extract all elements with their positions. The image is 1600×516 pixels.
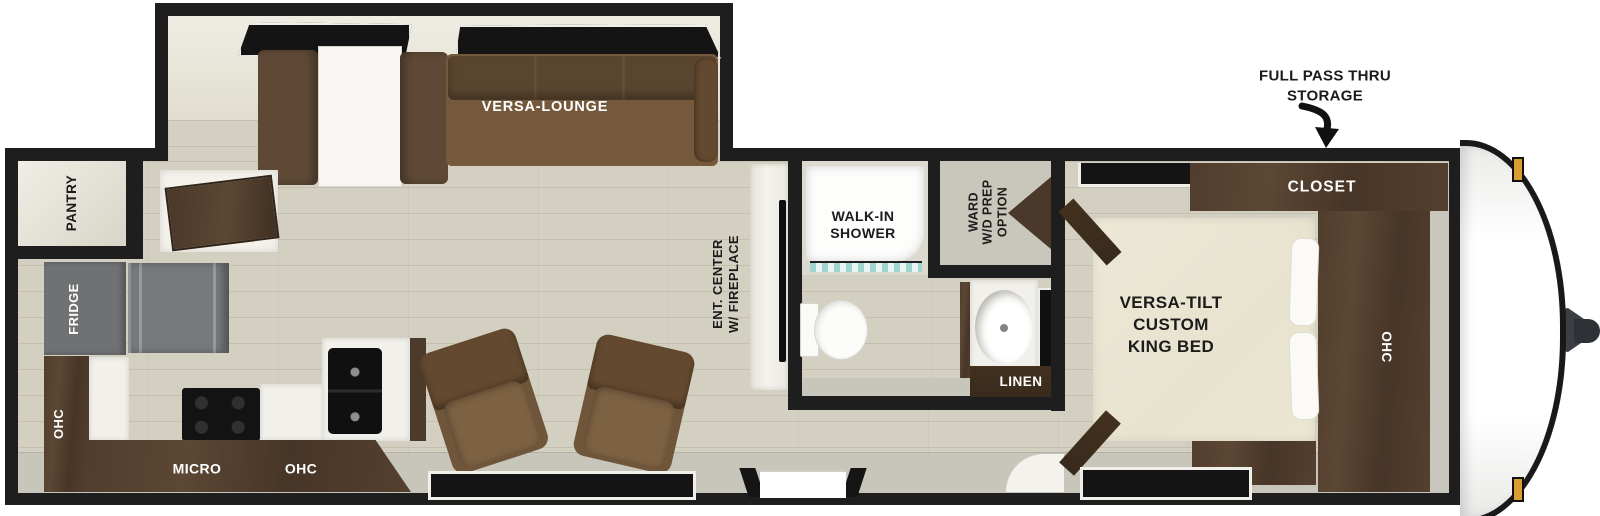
label-line: CUSTOM (1120, 314, 1223, 336)
ent-center-label: ENT. CENTER W/ FIREPLACE (710, 235, 742, 333)
label-line: OPTION (995, 179, 1009, 244)
toilet-bowl (814, 300, 868, 360)
versa-lounge-label: VERSA-LOUNGE (482, 99, 608, 117)
label-line: PANTRY (64, 175, 79, 231)
bed-pillow-1 (1288, 238, 1319, 327)
marker-light-top (1512, 157, 1524, 182)
full-pass-thru-storage-label: FULL PASS THRU STORAGE (1259, 67, 1391, 106)
overhead-cabinet-open-door (165, 175, 280, 252)
entry-door (760, 470, 846, 498)
storage-arrow-icon (1296, 102, 1352, 152)
bedroom-top-window (1078, 163, 1197, 187)
tv (779, 200, 786, 362)
hitch-tongue (1574, 319, 1600, 343)
bath-bottom-wall (788, 396, 1065, 410)
fridge (44, 262, 126, 355)
bedroom-left-wall (1051, 148, 1065, 411)
bedroom-ohc-label: OHC (1378, 331, 1394, 362)
dinette-table (318, 46, 402, 187)
sofa-back-cushions (448, 56, 716, 100)
bed-pillow-2 (1288, 332, 1319, 421)
kitchen-sink (328, 348, 382, 434)
ward-bottom-wall (940, 265, 1051, 278)
label-line: W/ FIREPLACE (726, 235, 742, 333)
dinette-bench-right (400, 52, 448, 184)
label-line: CLOSET (1288, 179, 1357, 196)
fridge-door (128, 263, 229, 353)
label-line: ENT. CENTER (710, 235, 726, 333)
label-line: VERSA-LOUNGE (482, 99, 608, 115)
bedroom-ohc-wardrobe-column (1318, 211, 1430, 492)
ward-label: WARD W/D PREP OPTION (966, 179, 1009, 244)
label-line: FRIDGE (66, 283, 81, 335)
kitchen-counter-2 (260, 384, 324, 441)
shower-glass-door (810, 261, 922, 272)
shower-label: WALK-IN SHOWER (830, 208, 895, 242)
shower-ward-divider-wall (928, 148, 940, 278)
marker-light-bottom (1512, 477, 1524, 502)
kitchen-counter-1 (89, 357, 129, 441)
bedroom-bottom-window (1080, 467, 1252, 500)
dinette-bench-left (258, 50, 318, 185)
label-line: VERSA-TILT (1120, 292, 1223, 314)
label-line: KING BED (1120, 336, 1223, 358)
label-line: WALK-IN (830, 208, 895, 225)
linen-label: LINEN (1000, 374, 1043, 390)
kitchen-ohc-left-label: OHC (51, 409, 67, 439)
label-line: FULL PASS THRU (1259, 67, 1391, 87)
bath-left-wall (788, 148, 802, 410)
label-line: OHC (285, 460, 317, 476)
pantry-label: PANTRY (64, 175, 80, 231)
stove-cooktop (182, 388, 260, 441)
kitchen-counter-micro-ohc (89, 440, 411, 492)
label-line: MICRO (173, 460, 222, 476)
king-bed-label: VERSA-TILT CUSTOM KING BED (1120, 292, 1223, 358)
rv-floorplan: VERSA-LOUNGE PANTRY FRIDGE OHC MICRO OHC… (0, 0, 1600, 516)
pantry-wall-right (126, 148, 143, 259)
sink-drain (1000, 324, 1008, 332)
label-line: OHC (1379, 331, 1394, 362)
label-line: W/D PREP (981, 179, 995, 244)
living-bottom-window (428, 471, 696, 500)
label-line: OHC (51, 409, 66, 439)
pantry-wall-bottom (5, 246, 143, 259)
label-line: SHOWER (830, 225, 895, 242)
micro-label: MICRO (173, 460, 222, 477)
fridge-label: FRIDGE (66, 283, 82, 335)
sofa-armrest (694, 58, 718, 162)
label-line: WARD (966, 179, 980, 244)
kitchen-ohc-bottom-label: OHC (285, 460, 317, 477)
closet-label: CLOSET (1288, 179, 1357, 198)
front-cap-inner-wall (1430, 211, 1449, 492)
front-cap (1460, 140, 1566, 516)
label-line: LINEN (1000, 374, 1043, 389)
